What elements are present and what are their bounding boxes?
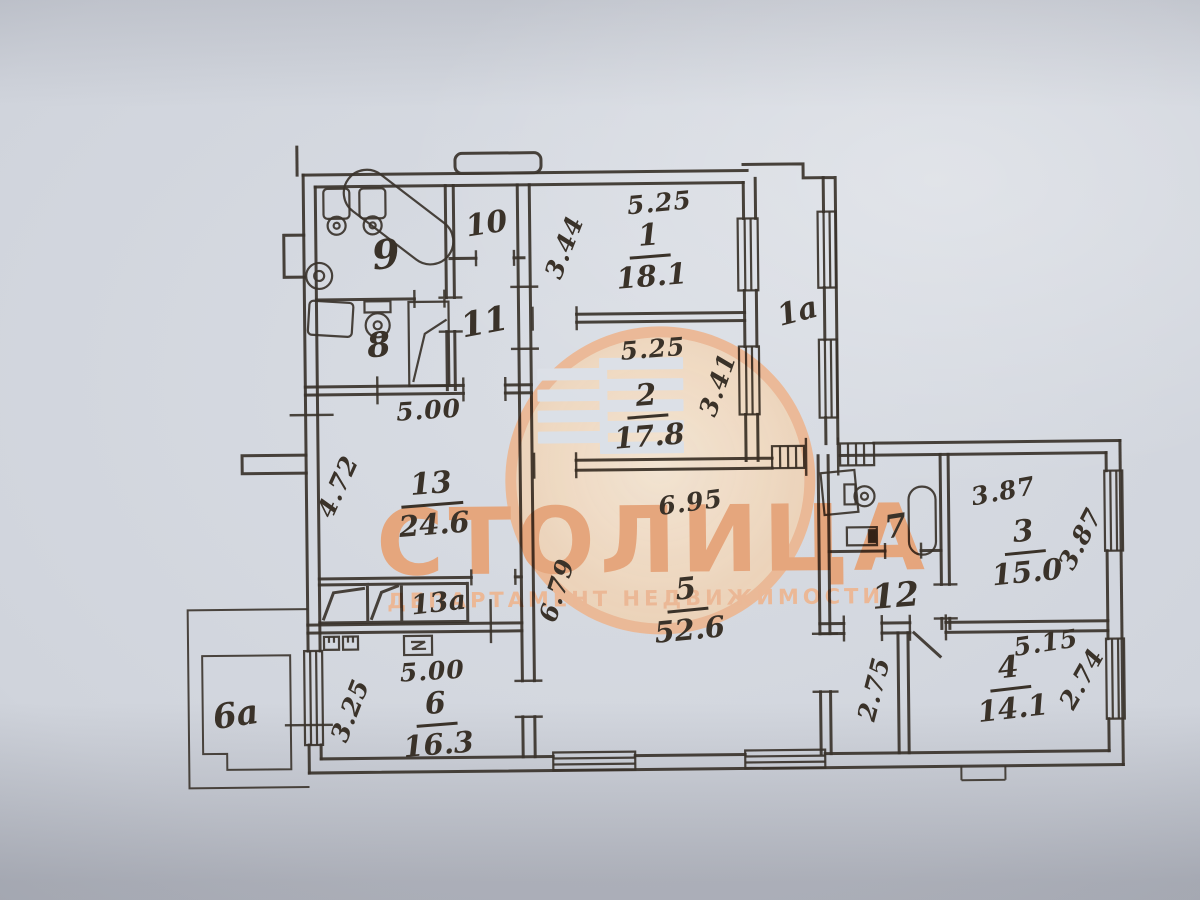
room-area: 14.1 xyxy=(976,686,1050,727)
radiator-icon xyxy=(324,637,339,650)
window-room5-left xyxy=(553,752,635,771)
dim-room6-width: 5.00 xyxy=(399,657,465,687)
window-loggia-top xyxy=(818,212,837,288)
room-2-label: 2 17.8 xyxy=(610,377,686,453)
appliance-icon xyxy=(847,527,877,545)
window-room6-balcony xyxy=(304,651,323,745)
room-4-label: 4 14.1 xyxy=(971,648,1049,727)
room-number: 2 xyxy=(624,379,668,420)
room-9-label: 9 xyxy=(370,233,402,278)
room-area: 24.6 xyxy=(398,503,471,542)
room-6a-label: 6а xyxy=(211,695,262,737)
room-number: 6 xyxy=(414,687,458,728)
room-13a-label: 13а xyxy=(410,586,468,620)
sink-icon xyxy=(820,470,858,515)
dim-room2-width: 5.25 xyxy=(620,334,687,365)
stove-symbol-icon xyxy=(404,636,432,655)
room-1-label: 1 18.1 xyxy=(612,217,688,293)
window-room2-loggia xyxy=(739,346,760,414)
wall-ticks xyxy=(280,245,959,725)
window-room5-right xyxy=(745,750,825,769)
room-area: 52.6 xyxy=(653,608,727,648)
room-number: 5 xyxy=(664,572,708,613)
floor-plan-drawing xyxy=(0,0,1200,900)
wardrobe-icon xyxy=(408,302,449,386)
room-12-label: 12 xyxy=(871,577,921,616)
radiator-icon xyxy=(343,637,358,650)
bathtub-icon xyxy=(908,486,936,554)
dim-room13-width: 5.00 xyxy=(395,396,461,426)
plan-tilt-wrapper: СТОЛИЦА ДЕПАРТАМЕНТ НЕДВИЖИМОСТИ 1 18.1 … xyxy=(0,0,1200,900)
room-10-label: 10 xyxy=(464,205,510,242)
room-area: 17.8 xyxy=(613,415,686,454)
room-11-label: 11 xyxy=(458,301,511,345)
room-number: 1 xyxy=(627,218,671,259)
sink-icon xyxy=(307,300,354,337)
window-loggia-bottom xyxy=(819,340,838,418)
room-6-label: 6 16.3 xyxy=(399,686,475,762)
room-number: 3 xyxy=(1001,514,1045,555)
room-area: 16.3 xyxy=(402,723,475,762)
sink-icon xyxy=(323,189,349,235)
vent-shaft-left xyxy=(772,446,804,468)
window-room1-loggia xyxy=(738,218,759,290)
room-13-label: 13 24.6 xyxy=(395,466,471,542)
room-8-label: 8 xyxy=(365,327,393,365)
room-area: 18.1 xyxy=(615,255,688,294)
room-7-label: 7 xyxy=(882,509,909,546)
room-5-label: 5 52.6 xyxy=(649,570,726,647)
dim-room1-width: 5.25 xyxy=(626,187,693,219)
duct-bump xyxy=(455,153,541,174)
sink-icon xyxy=(359,188,385,234)
room-number: 13 xyxy=(399,466,464,508)
room-3-label: 3 15.0 xyxy=(986,513,1063,590)
photographed-floor-plan: СТОЛИЦА ДЕПАРТАМЕНТ НЕДВИЖИМОСТИ 1 18.1 … xyxy=(0,0,1200,900)
room-area: 15.0 xyxy=(990,550,1064,590)
toilet-icon xyxy=(844,484,874,506)
washbasin-icon xyxy=(306,263,332,289)
